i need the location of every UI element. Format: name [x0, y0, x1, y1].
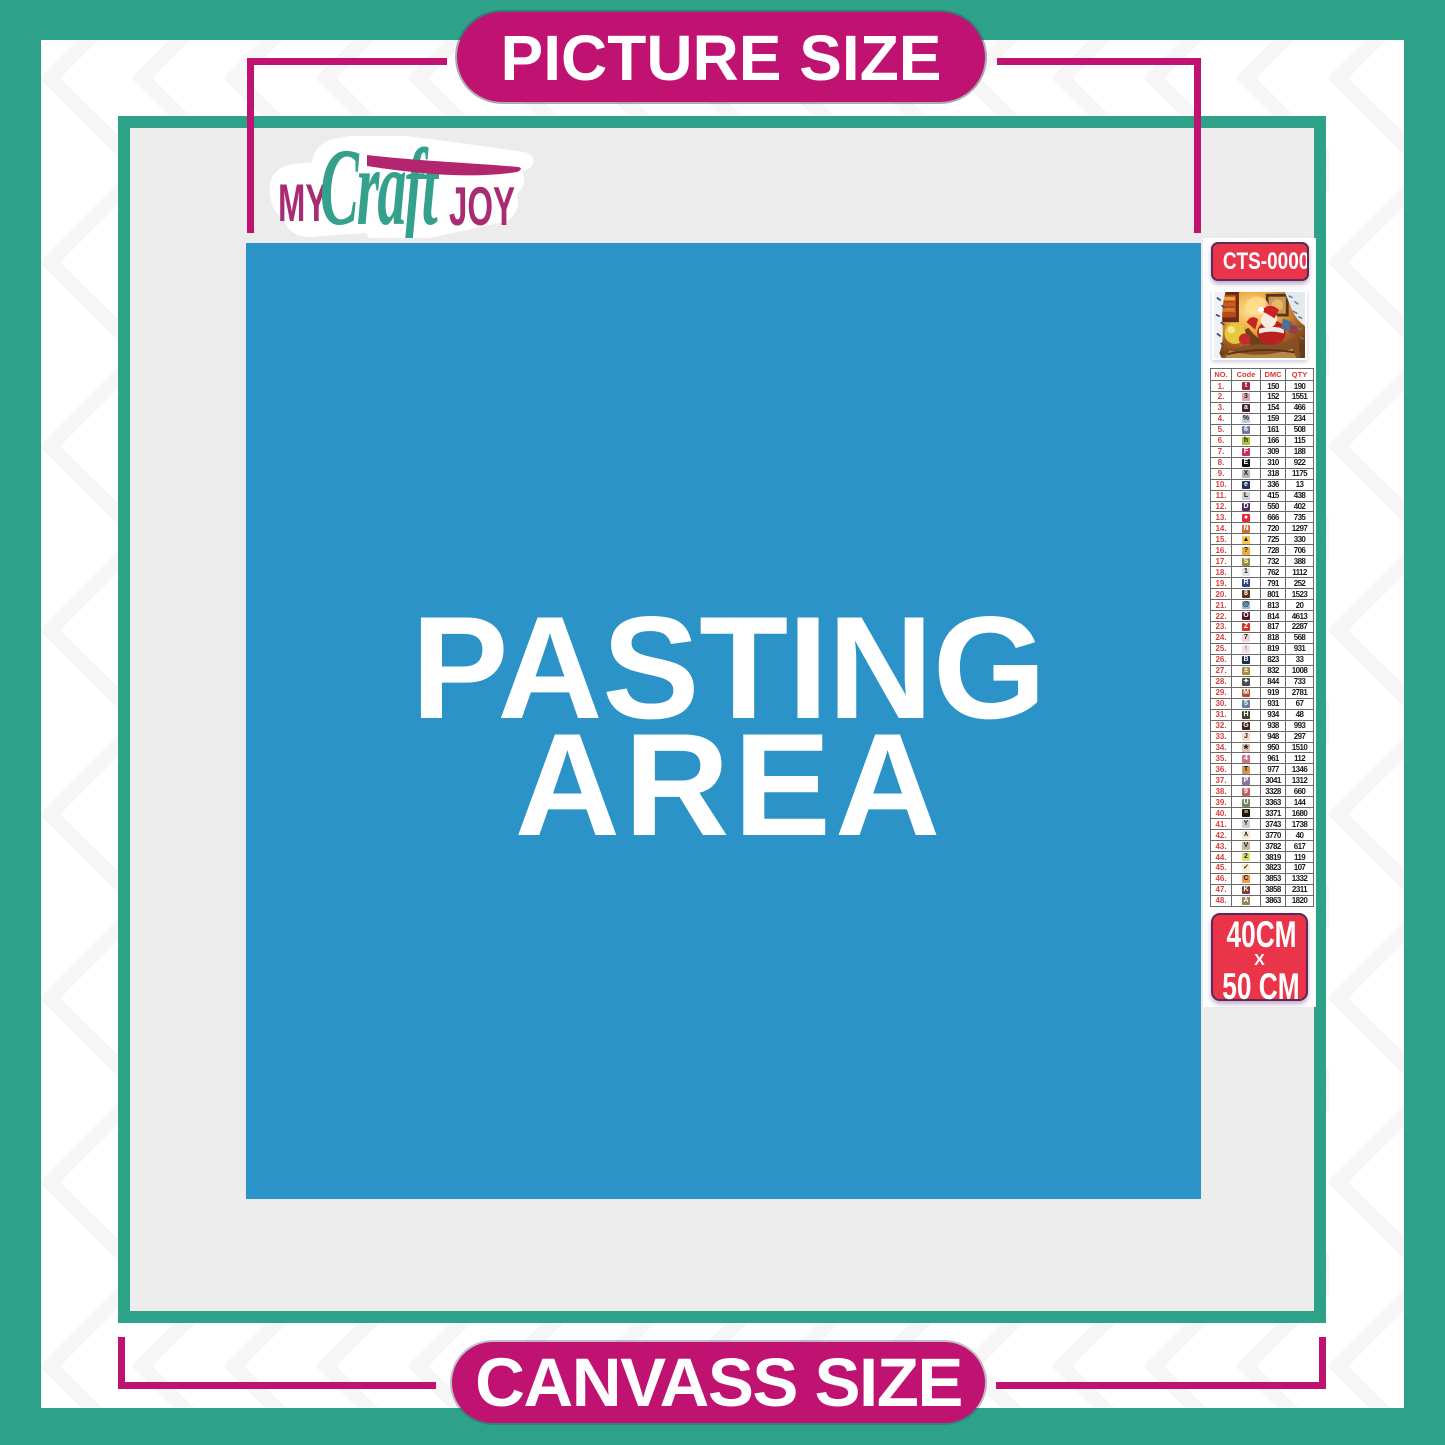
- svg-text:JOY: JOY: [449, 175, 515, 237]
- svg-text:Craft: Craft: [320, 136, 440, 238]
